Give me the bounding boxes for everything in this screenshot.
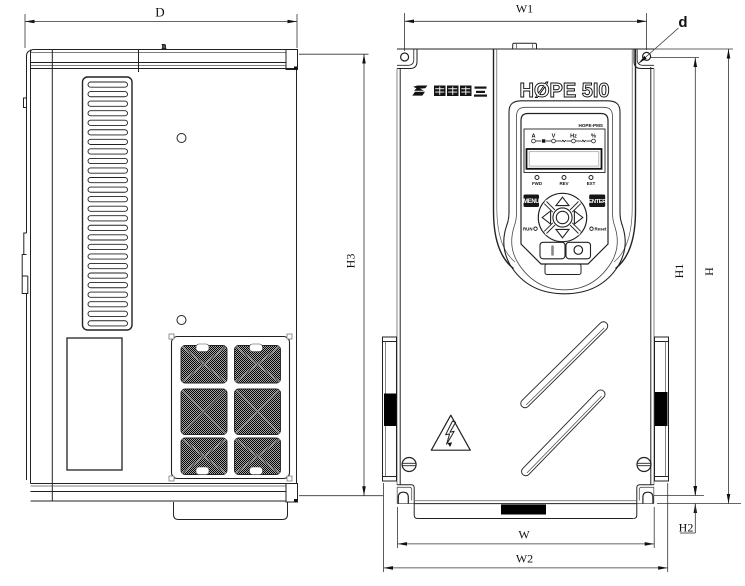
svg-text:Hz: Hz [570,134,577,140]
svg-text:MENU: MENU [523,199,539,205]
svg-text:HØPE 5I0: HØPE 5I0 [520,80,610,102]
svg-text:H1: H1 [672,264,686,279]
svg-text:D: D [155,5,164,20]
svg-text:V: V [552,134,556,140]
svg-text:n: n [162,42,166,51]
svg-text:H2: H2 [679,521,694,535]
svg-text:H3: H3 [344,254,358,269]
svg-text:%: % [591,134,596,140]
svg-text:W1: W1 [516,2,533,16]
svg-text:HOPE-PMS: HOPE-PMS [578,123,603,128]
svg-text:A: A [531,134,535,140]
svg-text:ENTER: ENTER [588,199,607,205]
svg-text:d: d [678,14,687,31]
svg-text:FWD: FWD [532,181,542,186]
svg-text:Reset: Reset [595,226,607,231]
svg-text:RUN: RUN [523,226,533,231]
svg-text:W2: W2 [516,552,533,566]
svg-text:EXT: EXT [587,181,596,186]
svg-text:H: H [702,267,716,276]
svg-text:REV: REV [559,181,568,186]
svg-text:W: W [518,528,530,542]
